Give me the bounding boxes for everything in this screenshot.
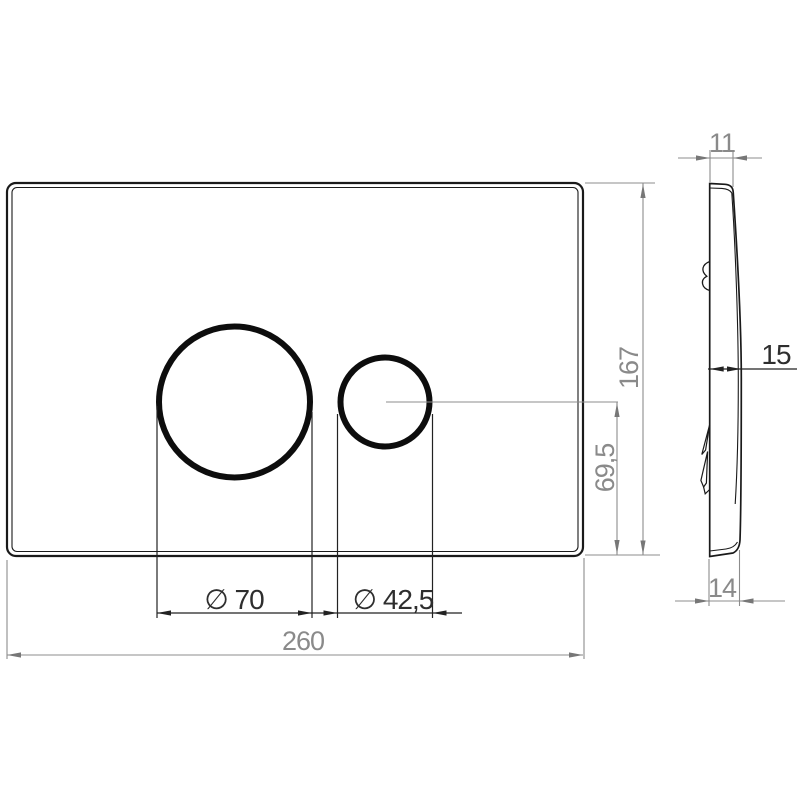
large-button-circle bbox=[159, 327, 310, 478]
dim-height: 167 bbox=[585, 183, 660, 555]
dim-center-height-label: 69,5 bbox=[590, 444, 620, 493]
drawing-canvas: ∅ 70 ∅ 42,5 260 167 69,5 bbox=[0, 0, 800, 800]
profile-inner-curve-line bbox=[732, 193, 739, 504]
plate-outer-edge bbox=[7, 183, 583, 556]
mounting-clip-lower-blade2 bbox=[701, 452, 708, 488]
profile-outline bbox=[710, 184, 742, 557]
dim-center-height: 69,5 bbox=[590, 402, 620, 555]
dim-height-label: 167 bbox=[614, 347, 644, 389]
dim-depth-label: 15 bbox=[761, 339, 791, 370]
dim-width-label: 260 bbox=[282, 626, 324, 656]
dim-bottom-thickness: 14 bbox=[675, 550, 785, 606]
dim-small-diameter-label: ∅ 42,5 bbox=[353, 584, 434, 615]
plate-inner-edge bbox=[12, 188, 578, 552]
dim-top-thickness-label: 11 bbox=[709, 128, 735, 158]
technical-drawing-page: ∅ 70 ∅ 42,5 260 167 69,5 bbox=[0, 0, 800, 800]
mounting-clip-lower-hook bbox=[704, 487, 710, 494]
dim-width: 260 bbox=[7, 558, 584, 659]
dim-depth: 15 bbox=[708, 339, 797, 372]
profile-top-bevel-line bbox=[710, 188, 732, 193]
mounting-clip-lower-blade1 bbox=[702, 425, 710, 455]
dim-top-thickness: 11 bbox=[678, 128, 762, 187]
mounting-clip-upper bbox=[702, 262, 709, 291]
dim-large-diameter-label: ∅ 70 bbox=[204, 584, 264, 615]
dim-bottom-thickness-label: 14 bbox=[708, 573, 737, 603]
profile-bottom-bevel-line bbox=[710, 542, 738, 551]
